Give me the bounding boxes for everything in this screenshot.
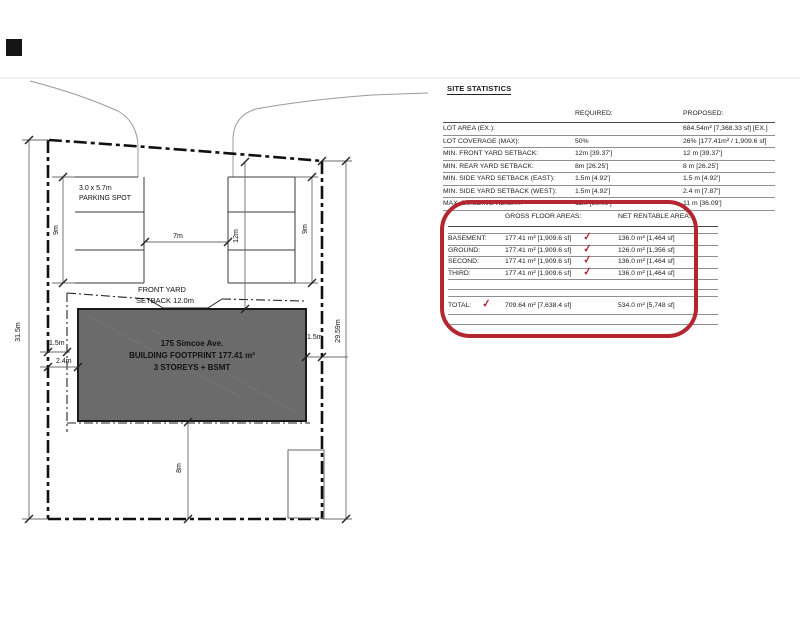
total-net-value: 534.0 m² [5,748 sf] [618,297,718,314]
stats-row-proposed: 26% [177.41m² / 1,909.6 sf] [683,136,775,148]
table-row: LOT COVERAGE (MAX): 50% 26% [177.41m² / … [443,136,775,149]
floor-areas-header-row: GROSS FLOOR AREAS: NET RENTABLE AREA: [448,208,718,227]
table-row: MIN. SIDE YARD SETBACK (EAST): 1.5m [4.9… [443,173,775,186]
stats-row-proposed: 2.4 m [7.87'] [683,186,775,198]
driveway-curb-curves [30,81,428,177]
site-statistics-title: SITE STATISTICS [447,84,511,95]
floor-gross-value: 177.41 m² [1,909.6 sf] [505,247,571,254]
floor-row-net: 136.0 m² [1,464 sf] [618,269,718,280]
stats-row-required: 12m [39.37'] [575,148,683,160]
floors-header-spacer [448,208,505,226]
stats-row-label: LOT COVERAGE (MAX): [443,136,575,148]
dim-side-west-setback: 1.5m [49,340,65,347]
stats-row-proposed: 12 m [39.37'] [683,148,775,160]
dim-parking-west: 9m [53,225,60,235]
check-icon: ✓ [582,243,593,254]
stats-row-required [575,123,683,135]
floors-col-net: NET RENTABLE AREA: [618,208,718,226]
floor-row-label: GROUND: [448,246,505,257]
floor-row-net: 126.0 m² [1,356 sf] [618,246,718,257]
floor-row-net: 136.0 m² [1,464 sf] [618,234,718,245]
stats-row-label: MIN. FRONT YARD SETBACK: [443,148,575,160]
stats-row-label: MIN. REAR YARD SETBACK: [443,161,575,173]
parking-spot-label: PARKING SPOT [79,195,132,202]
floor-row-net: 136.0 m² [1,464 sf] [618,257,718,268]
spacer-row [448,280,718,290]
stats-row-required: 1.5m [4.92'] [575,186,683,198]
stats-row-label: MIN. SIDE YARD SETBACK (EAST): [443,173,575,185]
stats-row-required: 8m [26.25'] [575,161,683,173]
floor-row-label: THIRD: [448,269,505,280]
table-row: LOT AREA (EX.): 684.54m² [7,368.33 sf] [… [443,123,775,136]
accessory-structure [288,450,324,518]
floor-row-label: SECOND: [448,257,505,268]
total-label: TOTAL: [448,302,471,309]
front-yard-label-line1: FRONT YARD [138,285,187,294]
parking-stalls [75,177,295,283]
dim-lot-west: 31.5m [15,322,22,342]
table-row: THIRD: 177.41 m² [1,909.6 sf]✓ 136.0 m² … [448,269,718,281]
floor-row-gross: 177.41 m² [1,909.6 sf]✓ [505,234,618,245]
dim-front-yard: 12m [233,229,240,243]
stats-col-proposed: PROPOSED: [683,106,775,122]
table-row: MIN. SIDE YARD SETBACK (WEST): 1.5m [4.9… [443,186,775,199]
stats-row-proposed: 1.5 m [4.92'] [683,173,775,185]
building-footprint-label: BUILDING FOOTPRINT 177.41 m² [129,351,255,360]
dim-side-west-building: 2.4m [56,358,72,365]
scan-marker-square [6,39,22,56]
stats-row-proposed: 684.54m² [7,368.33 sf] [EX.] [683,123,775,135]
dim-parking-gap: 7m [173,233,183,240]
floors-col-gross: GROSS FLOOR AREAS: [505,208,618,226]
front-yard-label-line2: SETBACK 12.0m [136,296,194,305]
dim-parking-east: 9m [302,224,309,234]
stats-row-proposed: 8 m [26.25'] [683,161,775,173]
scanned-site-plan-page: { "colors": { "highlight_red": "#b32731"… [0,0,800,618]
plan-annotations: 3.0 x 5.7m PARKING SPOT FRONT YARD SETBA… [79,185,194,305]
total-row: TOTAL:✓ 709.64 m² [7,638.4 sf] 534.0 m² … [448,297,718,315]
total-gross-value: 709.64 m² [7,638.4 sf] [505,297,618,314]
building-address-label: 175 Simcoe Ave. [161,339,224,348]
spacer-row [448,315,718,325]
stats-row-required: 50% [575,136,683,148]
stats-col-required: REQUIRED: [575,106,683,122]
total-label-cell: TOTAL:✓ [448,297,505,314]
stats-header-spacer [443,106,575,122]
floor-row-gross: 177.41 m² [1,909.6 sf]✓ [505,269,618,280]
stats-row-required: 1.5m [4.92'] [575,173,683,185]
stats-row-label: LOT AREA (EX.): [443,123,575,135]
table-row: MIN. REAR YARD SETBACK: 8m [26.25'] 8 m … [443,161,775,174]
dim-rear-yard: 8m [176,463,183,473]
floor-areas-table: GROSS FLOOR AREAS: NET RENTABLE AREA: BA… [448,208,718,325]
floor-row-gross: 177.41 m² [1,909.6 sf]✓ [505,246,618,257]
check-icon: ✓ [481,298,492,309]
dim-side-east: 1.5m [307,334,323,341]
check-icon: ✓ [582,254,593,265]
check-icon: ✓ [582,231,593,242]
floor-row-label: BASEMENT: [448,234,505,245]
floor-gross-value: 177.41 m² [1,909.6 sf] [505,258,571,265]
table-row: MIN. FRONT YARD SETBACK: 12m [39.37'] 12… [443,148,775,161]
dim-lot-east: 29.59m [335,319,342,343]
floor-gross-value: 177.41 m² [1,909.6 sf] [505,235,571,242]
stats-header-row: REQUIRED: PROPOSED: [443,106,775,123]
site-statistics-table: REQUIRED: PROPOSED: LOT AREA (EX.): 684.… [443,106,775,211]
floor-gross-value: 177.41 m² [1,909.6 sf] [505,270,571,277]
stats-row-label: MIN. SIDE YARD SETBACK (WEST): [443,186,575,198]
spacer-row [448,290,718,297]
parking-size-label: 3.0 x 5.7m [79,185,112,192]
check-icon: ✓ [582,266,593,277]
floor-row-gross: 177.41 m² [1,909.6 sf]✓ [505,257,618,268]
building-storeys-label: 3 STOREYS + BSMT [154,363,231,372]
